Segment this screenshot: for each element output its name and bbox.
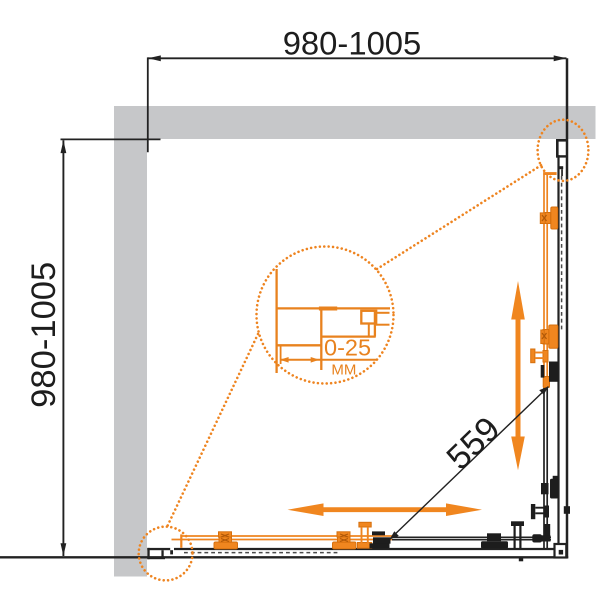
svg-text:980-1005: 980-1005 (25, 262, 63, 408)
svg-text:980-1005: 980-1005 (283, 25, 422, 62)
svg-text:559: 559 (440, 410, 508, 477)
svg-text:0-25: 0-25 (324, 335, 371, 361)
svg-text:MM: MM (331, 362, 356, 379)
